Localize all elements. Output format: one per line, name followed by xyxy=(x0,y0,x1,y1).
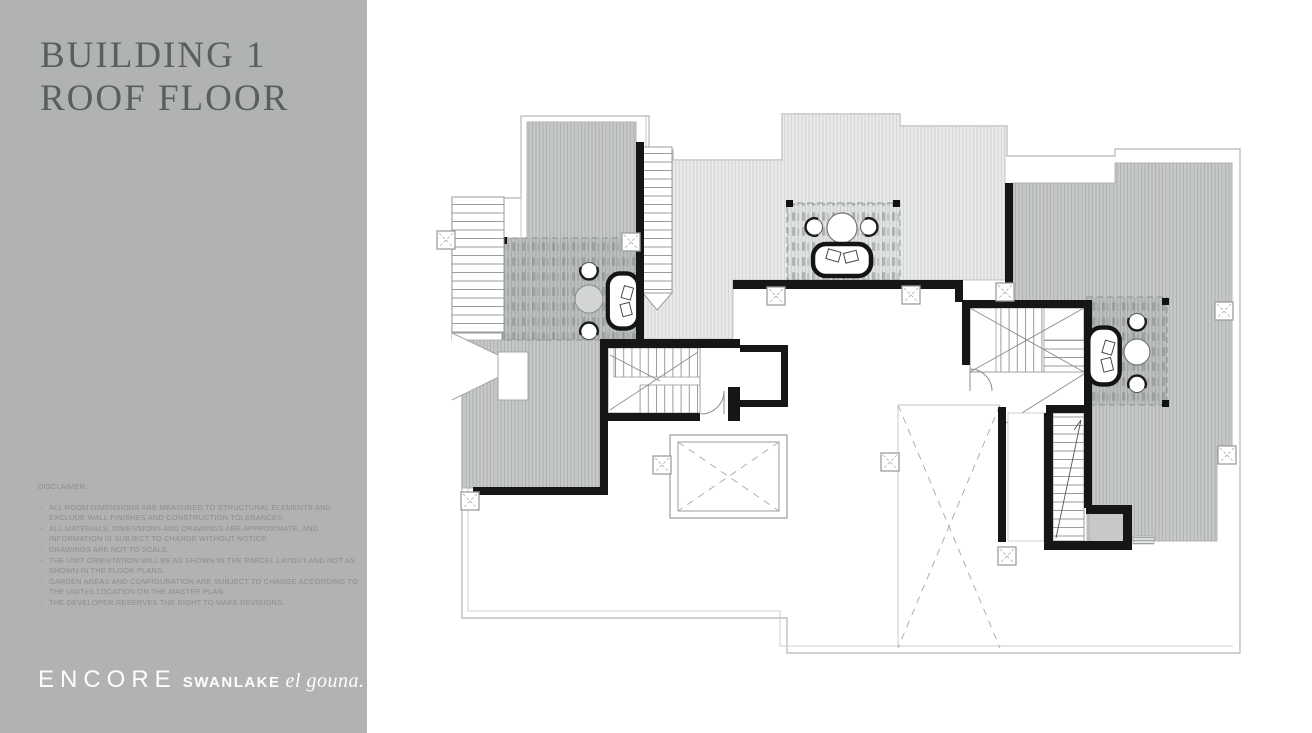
logo-swanlake: SWANLAKE xyxy=(183,674,281,691)
floor-title: ROOF FLOOR xyxy=(40,77,289,120)
brand-logo: ENCORE SWANLAKE el gouna. xyxy=(38,666,364,694)
disclaimer-item: - ALL ROOM DIMENSIONS ARE MEASURED TO ST… xyxy=(38,503,360,523)
disclaimer-item: - DRAWINGS ARE NOT TO SCALE. xyxy=(38,545,360,555)
chair-icon xyxy=(580,263,598,280)
chair-icon xyxy=(861,218,878,236)
logo-encore: ENCORE xyxy=(38,666,177,694)
disclaimer-item: - ALL MATERIALS, DIMENSIONS AND DRAWINGS… xyxy=(38,524,360,544)
stair-central xyxy=(608,348,700,413)
disclaimer-item: - THE UNIT ORIENTATION WILL BE AS SHOWN … xyxy=(38,556,360,576)
table-right xyxy=(1124,339,1150,365)
skylight-large xyxy=(670,435,787,518)
building-title: BUILDING 1 xyxy=(40,34,289,77)
table-upper-left xyxy=(575,285,603,313)
page-title: BUILDING 1 ROOF FLOOR xyxy=(40,34,289,120)
sofa-icon xyxy=(813,244,871,276)
chair-icon xyxy=(1128,314,1146,331)
terrace-step-hatch xyxy=(1133,536,1154,544)
disclaimer-item: - THE DEVELOPER RESERVES THE RIGHT TO MA… xyxy=(38,598,360,608)
chair-icon xyxy=(580,323,598,340)
sofa-icon xyxy=(1088,328,1119,385)
stair-left-run xyxy=(643,147,672,310)
disclaimer-heading: DISCLAIMER: xyxy=(38,482,360,492)
disclaimer: DISCLAIMER: - ALL ROOM DIMENSIONS ARE ME… xyxy=(38,482,360,609)
chair-icon xyxy=(806,218,823,236)
sofa-icon xyxy=(608,273,638,328)
table-central xyxy=(827,213,857,243)
page: BUILDING 1 ROOF FLOOR DISCLAIMER: - ALL … xyxy=(0,0,1312,733)
chair-icon xyxy=(1128,376,1146,393)
disclaimer-item: - GARDEN AREAS AND CONFIGURATION ARE SUB… xyxy=(38,577,360,597)
logo-elgouna: el gouna. xyxy=(286,670,365,693)
terrace-nook xyxy=(1092,514,1122,541)
sidebar: BUILDING 1 ROOF FLOOR DISCLAIMER: - ALL … xyxy=(0,0,367,733)
disclaimer-list: - ALL ROOM DIMENSIONS ARE MEASURED TO ST… xyxy=(38,503,360,608)
